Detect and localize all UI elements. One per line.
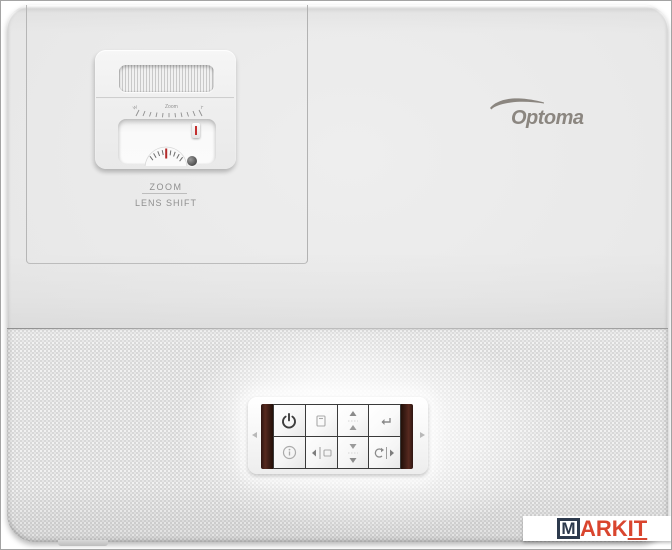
svg-text:Zoom: Zoom: [165, 104, 178, 110]
svg-text:Optoma: Optoma: [511, 107, 584, 129]
svg-text:W: W: [132, 104, 138, 110]
svg-text:T: T: [199, 105, 204, 111]
